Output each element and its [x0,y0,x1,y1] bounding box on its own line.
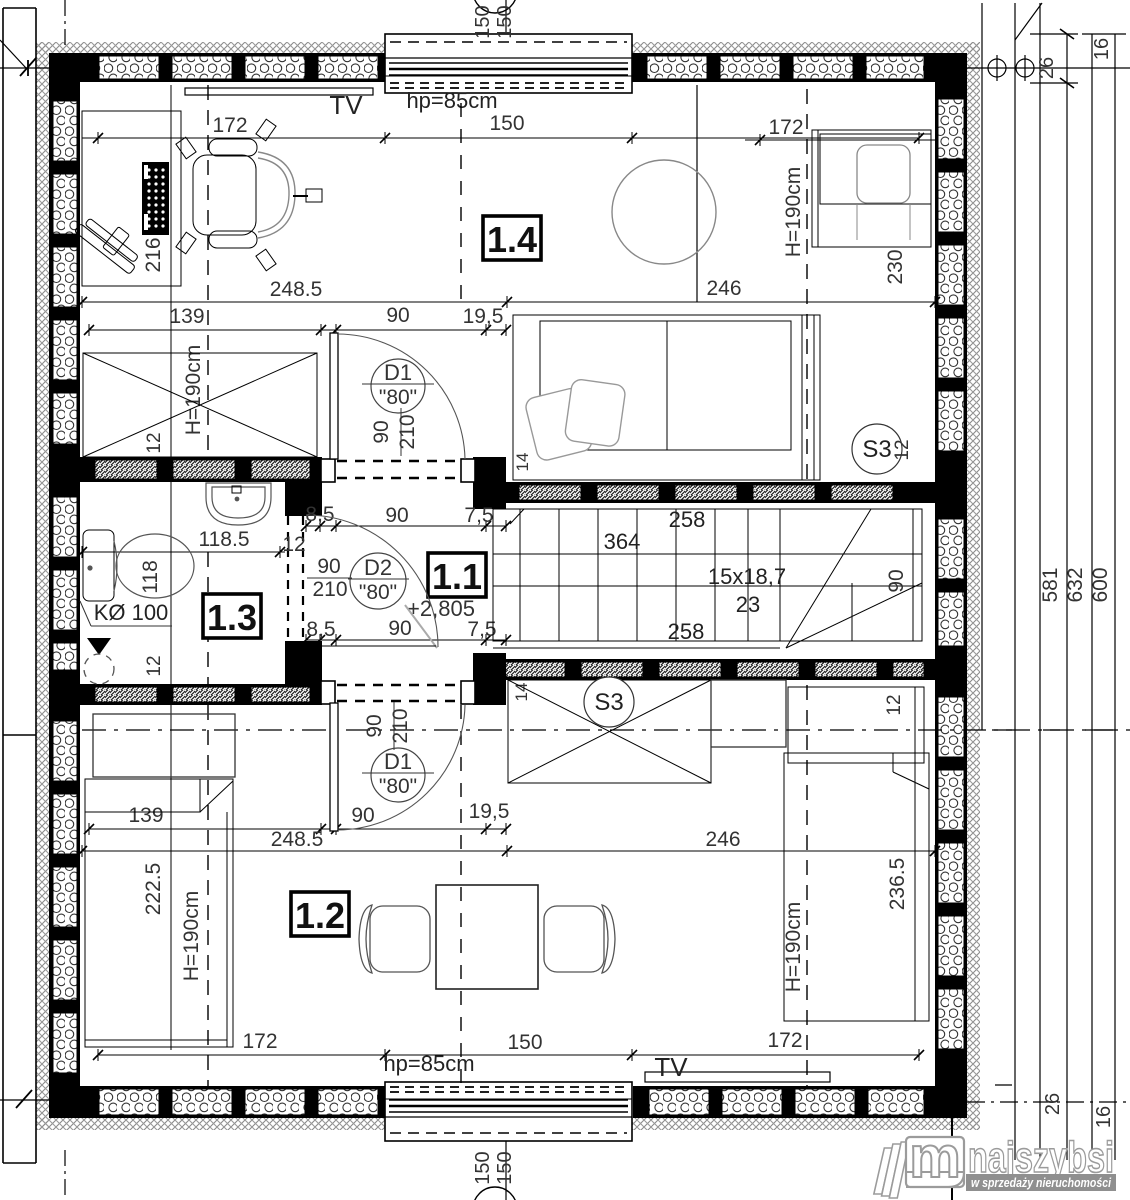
svg-text:172: 172 [767,1029,802,1052]
svg-text:1.3: 1.3 [207,597,257,638]
svg-text:150: 150 [494,5,516,38]
svg-text:KØ 100: KØ 100 [94,600,169,625]
svg-text:14: 14 [513,453,532,472]
svg-text:D2: D2 [364,555,392,580]
svg-text:"80": "80" [379,775,417,798]
svg-text:90: 90 [317,555,340,578]
svg-text:8,5: 8,5 [305,503,334,526]
svg-text:248.5: 248.5 [271,828,324,851]
svg-text:172: 172 [242,1030,277,1053]
svg-text:26: 26 [1042,1093,1064,1115]
svg-text:"80": "80" [359,581,397,604]
svg-text:19,5: 19,5 [469,800,510,823]
svg-text:1.2: 1.2 [295,895,345,936]
svg-text:246: 246 [706,277,741,300]
svg-text:581: 581 [1039,567,1062,602]
svg-text:150: 150 [472,1151,494,1184]
svg-text:1.1: 1.1 [432,556,482,597]
svg-text:H=190cm: H=190cm [182,345,205,435]
svg-text:12: 12 [144,432,165,453]
svg-text:90: 90 [363,714,386,737]
svg-text:364: 364 [604,529,641,554]
svg-text:210: 210 [396,414,419,449]
svg-text:90: 90 [351,804,374,827]
svg-text:D1: D1 [384,749,412,774]
svg-text:+2,805: +2,805 [407,596,475,621]
svg-text:19,5: 19,5 [463,305,504,328]
svg-text:258: 258 [669,507,706,532]
svg-text:236.5: 236.5 [886,858,909,911]
svg-text:1.4: 1.4 [487,219,537,260]
svg-text:12: 12 [282,533,305,556]
svg-text:222.5: 222.5 [142,863,165,916]
svg-text:230: 230 [884,249,907,284]
svg-text:H=190cm: H=190cm [782,902,805,992]
svg-text:m: m [909,1125,961,1190]
svg-text:hp=85cm: hp=85cm [406,88,497,113]
svg-text:139: 139 [128,804,163,827]
svg-text:26: 26 [1036,57,1058,79]
svg-text:16: 16 [1093,1106,1115,1128]
svg-text:7,5: 7,5 [467,618,496,641]
svg-text:150: 150 [494,1151,516,1184]
svg-text:16: 16 [1091,38,1113,60]
svg-text:S3: S3 [594,689,623,716]
svg-text:90: 90 [386,304,409,327]
svg-text:118: 118 [139,560,162,593]
svg-text:216: 216 [142,237,165,272]
svg-text:150: 150 [489,112,524,135]
svg-text:TV: TV [654,1052,688,1082]
svg-text:D1: D1 [384,360,412,385]
svg-text:210: 210 [389,708,412,743]
svg-text:246: 246 [705,828,740,851]
svg-text:H=190cm: H=190cm [782,167,805,257]
svg-text:23: 23 [736,592,760,617]
svg-text:632: 632 [1064,567,1087,602]
svg-text:15x18,7: 15x18,7 [708,564,786,589]
svg-text:"80": "80" [379,386,417,409]
svg-text:90: 90 [385,504,408,527]
svg-text:172: 172 [768,116,803,139]
svg-text:600: 600 [1089,567,1112,602]
svg-text:139: 139 [169,305,204,328]
svg-text:TV: TV [329,90,363,120]
svg-text:7,5: 7,5 [464,504,493,527]
svg-text:150: 150 [472,5,494,38]
svg-text:258: 258 [668,619,705,644]
svg-text:14: 14 [512,683,531,702]
svg-text:12: 12 [144,655,165,676]
svg-text:248.5: 248.5 [270,278,323,301]
svg-text:118.5: 118.5 [199,528,250,551]
svg-text:150: 150 [507,1031,542,1054]
svg-text:172: 172 [212,114,247,137]
svg-text:8,5: 8,5 [306,618,335,641]
svg-text:w sprzedaży nieruchomości: w sprzedaży nieruchomości [971,1175,1111,1190]
svg-text:S3: S3 [862,436,891,463]
svg-text:12: 12 [884,694,905,715]
svg-text:210: 210 [312,578,347,601]
svg-text:H=190cm: H=190cm [180,891,203,981]
svg-text:90: 90 [370,420,393,443]
svg-text:90: 90 [885,569,908,592]
